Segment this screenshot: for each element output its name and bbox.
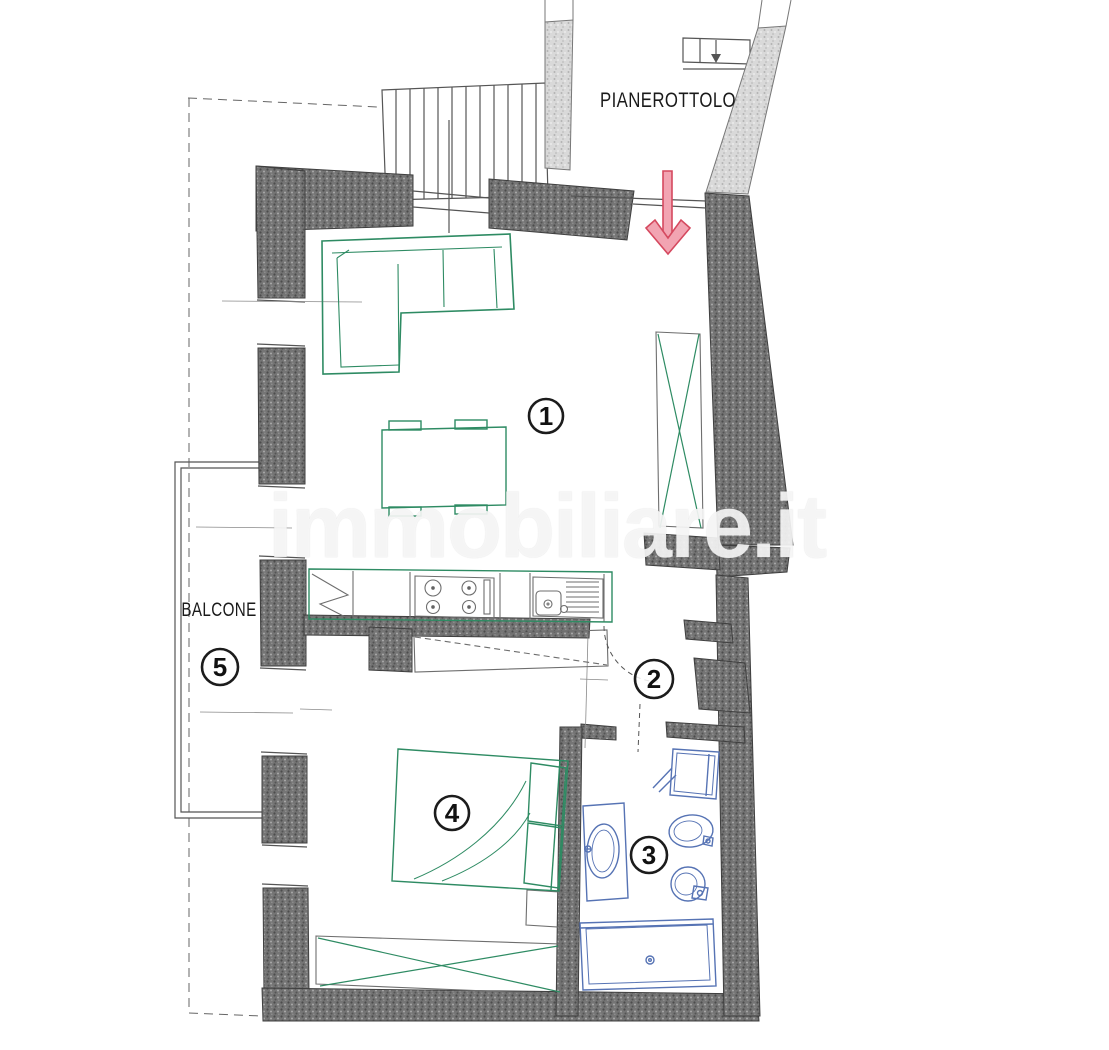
double-bed [392, 749, 568, 891]
room-3-label: 3 [631, 837, 667, 873]
apartment-walls [256, 166, 793, 1021]
furniture-layer [309, 234, 701, 992]
svg-text:3: 3 [642, 840, 656, 870]
cabinet-door-swing [312, 574, 353, 621]
room-4-label: 4 [435, 796, 469, 830]
kitchen-sink [533, 577, 603, 618]
tall-wardrobe-x [658, 334, 701, 528]
room-5-label: 5 [202, 649, 238, 685]
bathroom-door-line [638, 704, 640, 752]
low-wardrobe-x [318, 938, 560, 992]
svg-text:1: 1 [539, 401, 553, 431]
svg-text:5: 5 [213, 652, 227, 682]
landing-label: PIANEROTTOLO [600, 89, 736, 112]
room-1-label: 1 [529, 399, 563, 433]
stove [415, 576, 494, 618]
svg-text:4: 4 [445, 798, 460, 828]
balcony-label: BALCONE [181, 598, 256, 620]
entry-arrow-icon [646, 171, 690, 254]
dining-table [382, 420, 506, 516]
landing-staircase [683, 38, 752, 69]
openings [257, 191, 706, 886]
floorplan-page: 1 2 3 4 5 PIANEROTTOLO BALCONE immobilia… [0, 0, 1109, 1050]
bathtub [580, 919, 716, 990]
bathroom-sink [583, 803, 628, 901]
washing-machine [653, 749, 719, 799]
toilet [671, 867, 708, 901]
sofa [322, 234, 514, 374]
bidet [667, 813, 714, 849]
svg-text:2: 2 [647, 664, 661, 694]
floorplan-drawing: 1 2 3 4 5 PIANEROTTOLO BALCONE [0, 0, 1109, 1050]
room-2-label: 2 [635, 660, 673, 698]
